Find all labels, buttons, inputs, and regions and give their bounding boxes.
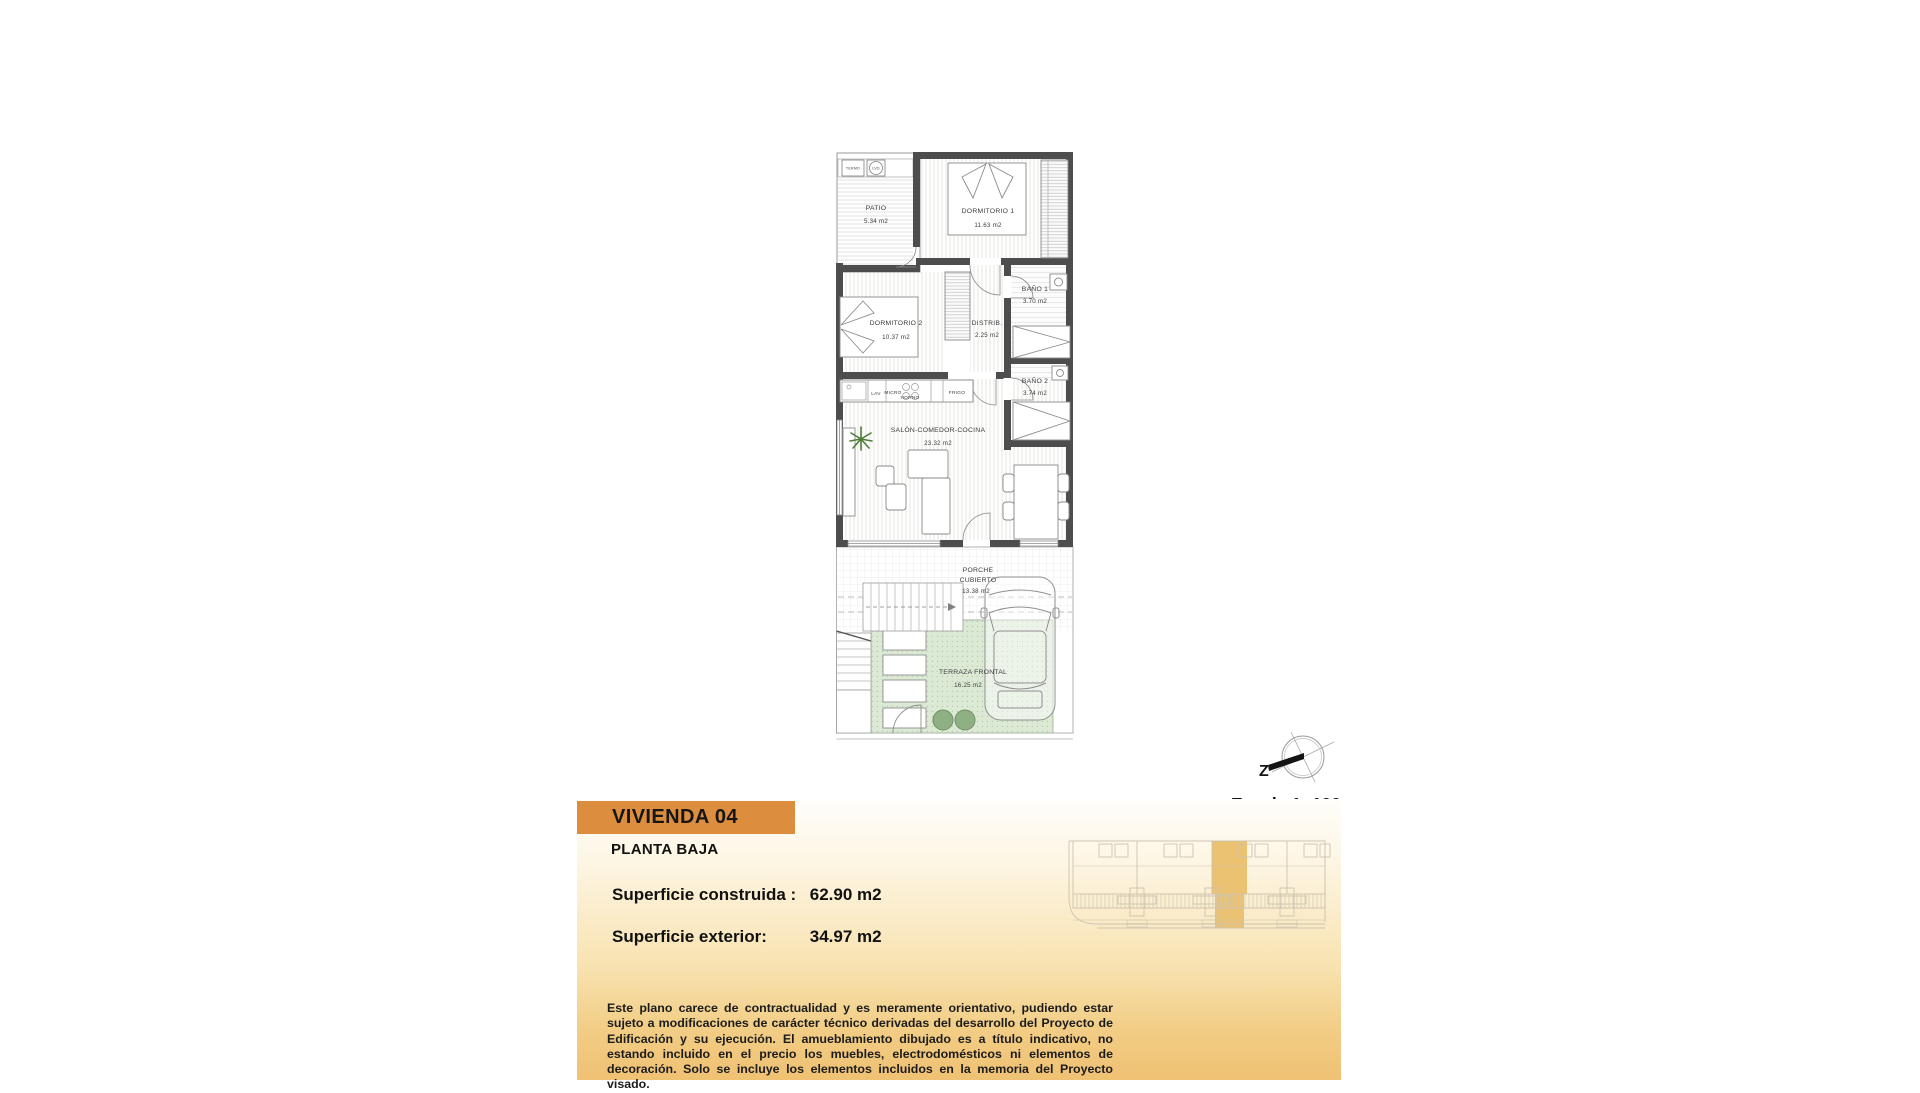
room-area-distrib: 2.25 m2 bbox=[975, 332, 999, 339]
kitchen-label-lav: LAV bbox=[871, 391, 881, 397]
room-label-porche-1: PORCHE bbox=[963, 567, 994, 574]
washer-icon: LVD bbox=[867, 160, 885, 176]
footer-panel: VIVIENDA 04 PLANTA BAJA Superficie const… bbox=[577, 799, 1341, 1080]
disclaimer-text: Este plano carece de contractualidad y e… bbox=[607, 1001, 1113, 1093]
side-steps bbox=[837, 631, 872, 733]
termo-box: TERMO bbox=[842, 160, 864, 176]
exterior-stairs bbox=[863, 583, 963, 631]
room-area-bano1: 3.70 m2 bbox=[1023, 298, 1047, 305]
bed-dormitorio2 bbox=[840, 297, 918, 357]
compass-rose: Z bbox=[1256, 728, 1340, 786]
compass-north-label: Z bbox=[1259, 763, 1269, 780]
exterior-area-value: 34.97 m2 bbox=[810, 927, 882, 946]
built-area-label: Superficie construida : bbox=[612, 885, 805, 905]
floor-label: PLANTA BAJA bbox=[611, 841, 718, 858]
svg-text:TERMO: TERMO bbox=[846, 167, 860, 171]
unit-title: VIVIENDA 04 bbox=[612, 806, 738, 828]
distrib-floor bbox=[970, 265, 1004, 372]
room-area-salon: 23.32 m2 bbox=[924, 440, 952, 447]
room-label-salon: SALÓN-COMEDOR-COCINA bbox=[891, 425, 986, 434]
room-label-distrib: DISTRIB. bbox=[972, 320, 1003, 327]
room-label-dormitorio2: DORMITORIO 2 bbox=[870, 320, 923, 327]
room-area-dormitorio2: 10.37 m2 bbox=[882, 334, 910, 341]
exterior-area-label: Superficie exterior: bbox=[612, 927, 805, 947]
floor-plan: TERMO LVD bbox=[836, 150, 1077, 742]
built-area-row: Superficie construida : 62.90 m2 bbox=[612, 885, 882, 905]
room-label-bano2: BAÑO 2 bbox=[1022, 376, 1048, 385]
room-area-terraza: 16.25 m2 bbox=[954, 682, 982, 689]
svg-text:LVD: LVD bbox=[872, 167, 880, 171]
room-area-dormitorio1: 11.63 m2 bbox=[974, 222, 1002, 229]
closet bbox=[945, 272, 970, 340]
wardrobe bbox=[1041, 160, 1068, 258]
room-area-patio: 5.34 m2 bbox=[864, 218, 888, 225]
kitchen-counter: LAV MICRO HORNO FRIGO bbox=[840, 380, 973, 402]
room-area-porche: 13.38 m2 bbox=[962, 588, 990, 595]
key-plan-highlight bbox=[1212, 841, 1247, 928]
kitchen-label-horno: HORNO bbox=[900, 395, 919, 401]
compass-needle bbox=[1268, 753, 1304, 771]
car-icon bbox=[981, 577, 1059, 720]
exterior-area-row: Superficie exterior: 34.97 m2 bbox=[612, 927, 882, 947]
room-label-bano1: BAÑO 1 bbox=[1022, 284, 1048, 293]
room-label-terraza: TERRAZA FRONTAL bbox=[939, 669, 1007, 676]
built-area-value: 62.90 m2 bbox=[810, 885, 882, 904]
room-label-porche-2: CUBIERTO bbox=[960, 577, 997, 584]
kitchen-label-frigo: FRIGO bbox=[949, 390, 965, 396]
key-plan bbox=[1063, 836, 1331, 948]
room-label-dormitorio1: DORMITORIO 1 bbox=[962, 208, 1015, 215]
kitchen-label-micro: MICRO bbox=[884, 390, 901, 396]
room-label-patio: PATIO bbox=[866, 205, 887, 212]
room-area-bano2: 3.74 m2 bbox=[1023, 390, 1047, 397]
unit-title-bar: VIVIENDA 04 bbox=[577, 801, 795, 834]
